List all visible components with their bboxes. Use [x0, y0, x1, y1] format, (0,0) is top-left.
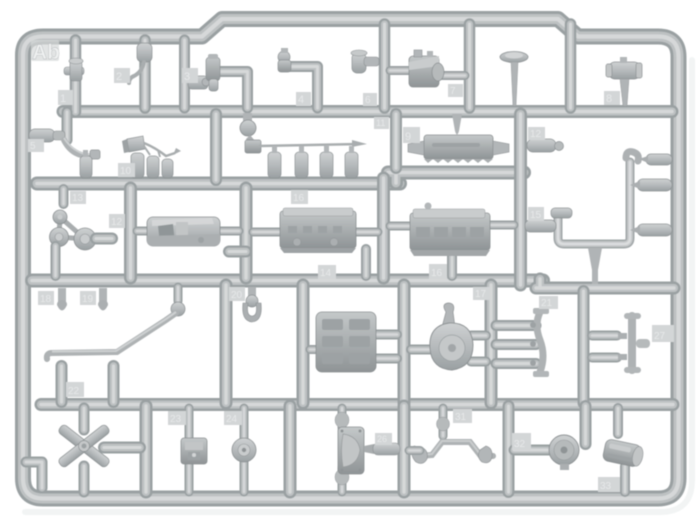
svg-text:16: 16	[431, 268, 443, 279]
svg-text:4: 4	[298, 94, 304, 106]
svg-text:12: 12	[530, 129, 542, 140]
svg-text:16: 16	[293, 193, 305, 204]
svg-text:10: 10	[120, 166, 132, 177]
svg-text:31: 31	[455, 412, 467, 423]
svg-text:9: 9	[405, 131, 411, 143]
svg-text:6: 6	[365, 95, 371, 106]
svg-text:8: 8	[606, 93, 612, 105]
svg-text:2: 2	[116, 71, 122, 83]
svg-text:3: 3	[184, 71, 190, 83]
svg-text:5: 5	[30, 141, 36, 152]
svg-text:Ab: Ab	[32, 41, 60, 64]
svg-text:24: 24	[226, 414, 238, 425]
svg-text:7: 7	[450, 86, 456, 97]
svg-text:1: 1	[60, 93, 66, 105]
svg-text:19: 19	[82, 294, 94, 305]
svg-text:33: 33	[600, 481, 612, 492]
svg-text:11: 11	[376, 118, 385, 128]
svg-text:20: 20	[231, 290, 243, 301]
svg-text:32: 32	[514, 439, 526, 450]
svg-text:17: 17	[475, 289, 487, 300]
svg-text:26: 26	[377, 434, 387, 444]
svg-text:15: 15	[530, 210, 542, 221]
svg-text:12: 12	[111, 217, 123, 228]
svg-text:13: 13	[72, 193, 84, 204]
svg-text:18: 18	[40, 294, 52, 305]
svg-text:23: 23	[170, 414, 182, 425]
svg-text:27: 27	[654, 331, 666, 342]
svg-text:22: 22	[68, 386, 80, 397]
svg-text:21: 21	[541, 298, 553, 309]
svg-text:14: 14	[320, 268, 332, 279]
